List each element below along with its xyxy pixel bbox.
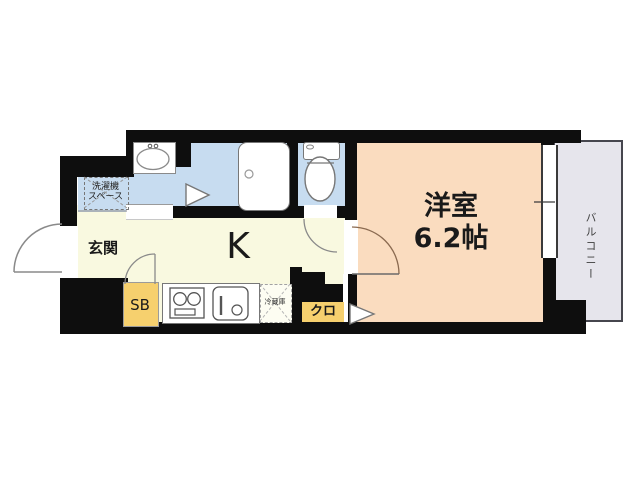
bathtub <box>238 142 290 211</box>
wall-below-window <box>543 256 556 303</box>
washbasin-unit <box>133 142 176 174</box>
wall-under-toilet <box>337 206 357 218</box>
front-door-arc <box>14 224 62 272</box>
shoe-box-label: SB <box>123 297 157 314</box>
toilet-tank <box>303 142 340 160</box>
laundry-space-label: 洗濯機 スペース <box>80 177 131 203</box>
front-door-opening <box>60 226 78 278</box>
wall-kitchen-room-lower <box>347 274 357 327</box>
wall-closet-top <box>302 272 325 302</box>
western-room-label: 洋室 6.2帖 <box>386 191 516 255</box>
western-room-door-opening <box>344 220 358 274</box>
floorplan-canvas: 玄関 K 洋室 6.2帖 バルコニー SB クロ 冷蔵庫 洗濯機 スペース <box>0 0 640 480</box>
balcony-label: バルコニー <box>578 212 596 322</box>
closet-label: クロ <box>302 305 344 320</box>
kitchen-label: K <box>210 226 266 267</box>
laundry-label-line1: 洗濯機 <box>80 182 131 192</box>
wall-left-upper <box>60 156 77 232</box>
entrance-label: 玄関 <box>80 240 126 257</box>
washroom-entry-opening <box>126 204 173 220</box>
laundry-label-line2: スペース <box>80 192 131 202</box>
refrigerator-label: 冷蔵庫 <box>260 298 290 306</box>
kitchen-counter <box>162 283 260 324</box>
western-room-name: 洋室 <box>386 191 516 223</box>
western-room-size: 6.2帖 <box>386 223 516 255</box>
toilet-door-opening <box>304 205 337 218</box>
balcony-window <box>541 145 558 258</box>
